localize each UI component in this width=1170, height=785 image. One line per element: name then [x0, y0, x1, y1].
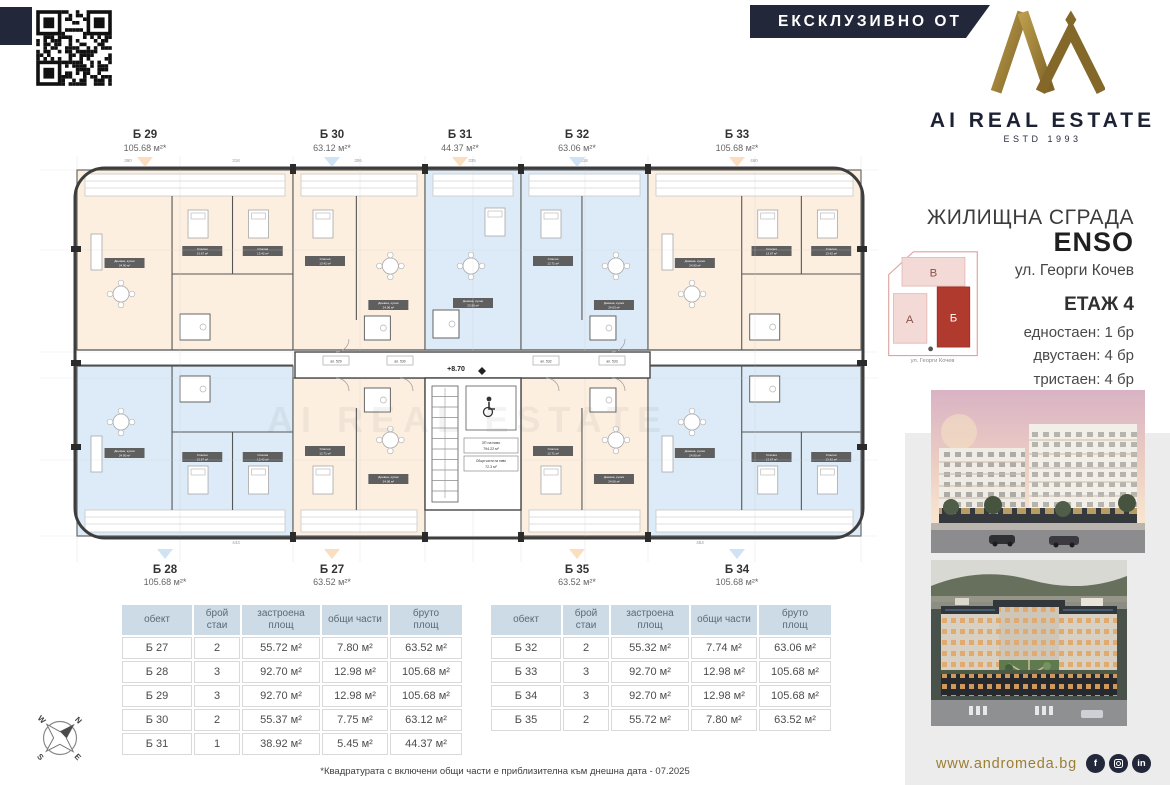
table-row: Б 28392.70 м²12.98 м²105.68 м²: [122, 661, 462, 683]
svg-text:105.68 м²*: 105.68 м²*: [716, 143, 759, 153]
qr-code: [32, 6, 116, 90]
block-v-label: В: [930, 268, 938, 280]
unit-label-Б-28: Б 28105.68 м²*: [144, 549, 187, 587]
watermark: AI REAL ESTATE: [267, 399, 669, 440]
svg-text:24.90 м²: 24.90 м²: [689, 263, 700, 267]
brand-logo-icon: [985, 4, 1105, 102]
svg-text:24.90 м²: 24.90 м²: [119, 263, 130, 267]
svg-text:13.67 м²: 13.67 м²: [766, 457, 777, 461]
compass-s: S: [35, 752, 46, 763]
table-header: бруто площ: [390, 605, 462, 635]
svg-text:105.68 м²*: 105.68 м²*: [124, 143, 167, 153]
exclusive-banner: ЕКСКЛУЗИВНО ОТ: [750, 5, 990, 38]
svg-text:24.90 м²: 24.90 м²: [689, 453, 700, 457]
svg-text:63.06 м²*: 63.06 м²*: [558, 143, 596, 153]
floor-unit-mix: едностаен: 1 бр двустаен: 4 бр тристаен:…: [1024, 321, 1134, 391]
compass-icon: N E S W: [28, 706, 92, 770]
svg-text:ап. 532: ап. 532: [540, 359, 551, 363]
svg-text:Б 28: Б 28: [153, 564, 178, 576]
svg-text:12.71 м²: 12.71 м²: [547, 261, 558, 265]
svg-text:13.67 м²: 13.67 м²: [197, 251, 208, 255]
svg-text:Б 35: Б 35: [565, 564, 590, 576]
brand-name: AI REAL ESTATE: [915, 109, 1170, 133]
svg-text:460: 460: [750, 158, 758, 163]
table-header: обект: [122, 605, 192, 635]
linkedin-icon[interactable]: in: [1132, 754, 1151, 773]
svg-text:63.52 м²*: 63.52 м²*: [313, 577, 351, 587]
svg-text:Б 34: Б 34: [725, 564, 750, 576]
compass-n: N: [73, 715, 84, 726]
floor-label: ЕТАЖ 4: [1064, 294, 1134, 316]
compass-w: W: [36, 714, 48, 726]
render-photo-aerial: [931, 560, 1127, 726]
svg-text:Б 29: Б 29: [133, 129, 157, 141]
facebook-icon[interactable]: f: [1086, 754, 1105, 773]
table-header: общи части: [691, 605, 757, 635]
instagram-icon[interactable]: [1109, 754, 1128, 773]
svg-text:24.90 м²: 24.90 м²: [119, 453, 130, 457]
svg-text:63.12 м²*: 63.12 м²*: [313, 143, 351, 153]
apartment-Б-28: Дневна, кухня24.90 м²Спалня13.67 м²Спалн…: [77, 366, 293, 536]
website-link[interactable]: www.andromeda.bg: [905, 756, 1077, 772]
unit-label-Б-34: Б 34105.68 м²*: [716, 549, 759, 587]
svg-text:Б 32: Б 32: [565, 129, 589, 141]
unit-label-Б-27: Б 2763.52 м²*: [313, 549, 351, 587]
table-row: Б 34392.70 м²12.98 м²105.68 м²: [491, 685, 831, 707]
table-header: обект: [491, 605, 561, 635]
unit-label-Б-30: Б 3063.12 м²*: [313, 129, 351, 167]
site-map-street: ул. Георги Кочев: [911, 358, 955, 364]
table-header: застроена площ: [611, 605, 689, 635]
table-header: бруто площ: [759, 605, 831, 635]
table-row: Б 31138.92 м²5.45 м²44.37 м²: [122, 733, 462, 755]
apartment-Б-33: Дневна, кухня24.90 м²Спалня13.67 м²Спалн…: [648, 170, 861, 350]
project-address: ул. Георги Кочев: [1015, 262, 1134, 280]
floor-plan: Дневна, кухня24.90 м²Спалня13.67 м²Спалн…: [0, 120, 905, 600]
svg-text:24.03 м²: 24.03 м²: [608, 305, 619, 309]
svg-text:24.06 м²: 24.06 м²: [383, 305, 394, 309]
svg-text:318: 318: [232, 158, 240, 163]
level-mark: +8.70: [447, 366, 465, 373]
apartment-Б-32: Дневна, кухня24.03 м²Спалня12.71 м²: [521, 170, 648, 350]
svg-text:13.42 м²: 13.42 м²: [257, 251, 268, 255]
svg-text:443: 443: [232, 540, 240, 545]
svg-text:Б 33: Б 33: [725, 129, 749, 141]
svg-text:63.52 м²*: 63.52 м²*: [558, 577, 596, 587]
svg-text:Б 27: Б 27: [320, 564, 344, 576]
svg-text:794.22 м²: 794.22 м²: [483, 447, 499, 451]
svg-text:ап. 529: ап. 529: [330, 359, 341, 363]
table-header: брой стаи: [194, 605, 240, 635]
compass-e: E: [73, 752, 84, 763]
table-row: Б 35255.72 м²7.80 м²63.52 м²: [491, 709, 831, 731]
svg-text:13.42 м²: 13.42 м²: [319, 261, 330, 265]
apartment-Б-34: Дневна, кухня24.90 м²Спалня13.67 м²Спалн…: [648, 366, 861, 536]
map-marker-icon: [928, 347, 933, 352]
render-photo-street: [931, 390, 1145, 553]
svg-text:ЗП на ниво: ЗП на ниво: [482, 441, 501, 445]
svg-text:ап. 530: ап. 530: [394, 359, 405, 363]
block-a-label: А: [906, 314, 914, 326]
brochure-page: ЕКСКЛУЗИВНО ОТ AI REAL ESTATE ESTD 1993 …: [0, 0, 1170, 785]
svg-text:Б 31: Б 31: [448, 129, 473, 141]
mix-line-3: тристаен: 4 бр: [1024, 368, 1134, 391]
svg-text:13.67 м²: 13.67 м²: [197, 457, 208, 461]
site-map: В А Б ул. Георги Кочев: [883, 246, 983, 368]
svg-text:453: 453: [696, 540, 704, 545]
area-table-2: обектброй стаизастроена площобщи частибр…: [489, 603, 833, 733]
table-row: Б 30255.37 м²7.75 м²63.12 м²: [122, 709, 462, 731]
footnote: *Квадратурата с включени общи части е пр…: [130, 766, 880, 777]
apartment-Б-29: Дневна, кухня24.90 м²Спалня13.67 м²Спалн…: [77, 170, 293, 350]
svg-text:13.42 м²: 13.42 м²: [257, 457, 268, 461]
svg-text:12.71 м²: 12.71 м²: [319, 451, 330, 455]
social-icons: f in: [1082, 754, 1151, 773]
mix-line-2: двустаен: 4 бр: [1024, 344, 1134, 367]
svg-text:Б 30: Б 30: [320, 129, 344, 141]
table-row: Б 33392.70 м²12.98 м²105.68 м²: [491, 661, 831, 683]
table-row: Б 29392.70 м²12.98 м²105.68 м²: [122, 685, 462, 707]
table-row: Б 32255.32 м²7.74 м²63.06 м²: [491, 637, 831, 659]
block-b-label: Б: [950, 312, 958, 324]
svg-text:24.06 м²: 24.06 м²: [608, 479, 619, 483]
svg-text:72.3 м²: 72.3 м²: [485, 465, 497, 469]
svg-text:306: 306: [354, 158, 362, 163]
svg-text:335: 335: [468, 158, 476, 163]
svg-text:105.68 м²*: 105.68 м²*: [716, 577, 759, 587]
svg-text:ап. 533: ап. 533: [606, 359, 617, 363]
unit-label-Б-32: Б 3263.06 м²*: [558, 129, 596, 167]
svg-text:13.42 м²: 13.42 м²: [825, 251, 836, 255]
svg-text:13.42 м²: 13.42 м²: [825, 457, 836, 461]
apartment-Б-30: Дневна, кухня24.06 м²Спалня13.42 м²: [293, 170, 425, 350]
unit-label-Б-35: Б 3563.52 м²*: [558, 549, 596, 587]
table-header: застроена площ: [242, 605, 320, 635]
svg-text:390: 390: [124, 158, 132, 163]
svg-text:44.37 м²*: 44.37 м²*: [441, 143, 479, 153]
svg-text:105.68 м²*: 105.68 м²*: [144, 577, 187, 587]
exclusive-banner-label: ЕКСКЛУЗИВНО ОТ: [778, 13, 962, 31]
svg-text:13.67 м²: 13.67 м²: [766, 251, 777, 255]
svg-text:Общи части на ниво: Общи части на ниво: [476, 459, 506, 463]
table-header: брой стаи: [563, 605, 609, 635]
mix-line-1: едностаен: 1 бр: [1024, 321, 1134, 344]
table-row: Б 27255.72 м²7.80 м²63.52 м²: [122, 637, 462, 659]
svg-text:12.71 м²: 12.71 м²: [547, 451, 558, 455]
brand-estd: ESTD 1993: [915, 134, 1170, 144]
table-header: общи части: [322, 605, 388, 635]
area-table-1: обектброй стаизастроена площобщи частибр…: [120, 603, 464, 757]
project-name: ENSO: [1053, 227, 1134, 258]
svg-text:24.06 м²: 24.06 м²: [383, 479, 394, 483]
